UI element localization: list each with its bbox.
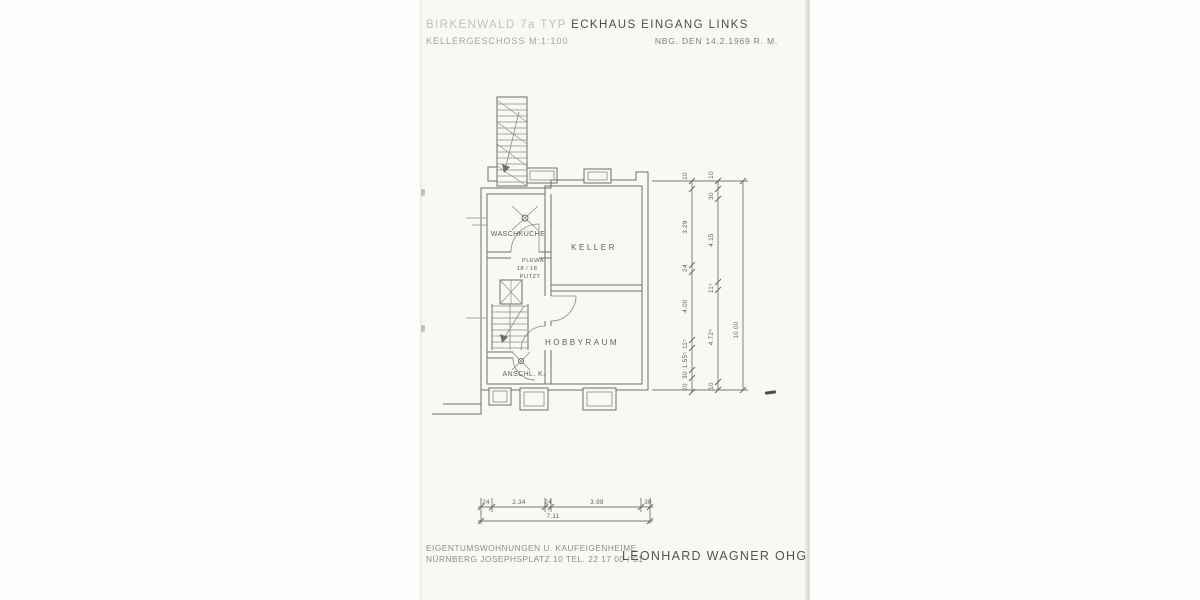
dim-label: 10 [708, 382, 715, 390]
date-note: NBG. DEN 14.2.1969 R. M. [655, 36, 778, 46]
party-wall-marks [466, 218, 487, 318]
dim-label: 24 [682, 264, 689, 272]
floorplan-drawing: PLEWA 18 / 18 PUTZT [420, 80, 810, 540]
project-name-faded: BIRKENWALD 7a TYP [426, 19, 567, 31]
dim-label: 3.29 [682, 220, 689, 234]
dim-label: 4.00 [682, 299, 689, 313]
room-label-keller: KELLER [571, 243, 617, 252]
dimension-chain-bottom: 24 2.34 24 3.99 30 7.11 [478, 498, 653, 524]
scanned-plan-page: BIRKENWALD 7a TYP ECKHAUS EINGANG LINKS … [420, 0, 810, 600]
chimney-label-1: PLEWA [522, 258, 544, 264]
dim-label: 24 [544, 499, 552, 506]
page-right-edge [804, 0, 810, 600]
room-label-anschluss: ANSCHL. K. [503, 371, 546, 378]
dim-label: 3.99 [590, 499, 604, 506]
page-left-edge [420, 0, 423, 600]
dim-label: 10 [708, 171, 715, 179]
room-label-waschkueche: WASCHKÜCHE [491, 230, 545, 238]
drain-symbol-waschkueche [512, 206, 538, 230]
dim-label: 30 [644, 499, 652, 506]
dim-label: 11⁵ [682, 339, 689, 349]
interior-stair [492, 304, 528, 350]
company-name: LEONHARD WAGNER OHG [622, 549, 807, 563]
dim-label: 10 [682, 172, 689, 180]
exterior-stair [488, 97, 557, 186]
dim-label: 2.34 [512, 499, 526, 506]
dim-label: 30 [708, 192, 715, 200]
chimney-label-2: 18 / 18 [517, 266, 538, 272]
dim-label: 4.72⁵ [708, 329, 715, 345]
dim-label: 4.15 [708, 233, 715, 247]
dim-label-total-height: 10.00 [733, 321, 740, 338]
footer-line-2: NÜRNBERG JOSEPHSPLATZ 10 TEL. 22 17 00 /… [426, 554, 631, 565]
dim-label: 11⁵ [708, 283, 715, 293]
dim-label: 30 [682, 371, 689, 379]
project-name-main: ECKHAUS EINGANG LINKS [571, 19, 749, 31]
room-label-hobbyraum: HOBBYRAUM [545, 338, 619, 347]
chimney-block: PLEWA 18 / 18 PUTZT [500, 258, 544, 304]
title-block: BIRKENWALD 7a TYP ECKHAUS EINGANG LINKS … [426, 19, 786, 46]
floor-scale-label: KELLERGESCHOSS M:1:100 [426, 36, 569, 46]
interior-walls [487, 194, 642, 384]
dim-label: 24 [482, 499, 490, 506]
footer-line-1: EIGENTUMSWOHNUNGEN U. KAUFEIGENHEIME [426, 543, 631, 554]
dim-label: 20 [682, 383, 689, 391]
door-swings [511, 224, 576, 380]
dimension-chain-right: 10 3.29 24 4.00 11⁵ 1.55⁵ 30 20 10 30 4.… [652, 171, 748, 395]
footer-block: EIGENTUMSWOHNUNGEN U. KAUFEIGENHEIME NÜR… [426, 543, 631, 565]
drain-symbol-anschluss [512, 352, 530, 370]
dim-label-total-width: 7.11 [547, 513, 560, 520]
chimney-label-3: PUTZT [520, 274, 541, 280]
drawing-title: BIRKENWALD 7a TYP ECKHAUS EINGANG LINKS [426, 19, 786, 31]
dim-label: 1.55⁵ [682, 352, 689, 368]
